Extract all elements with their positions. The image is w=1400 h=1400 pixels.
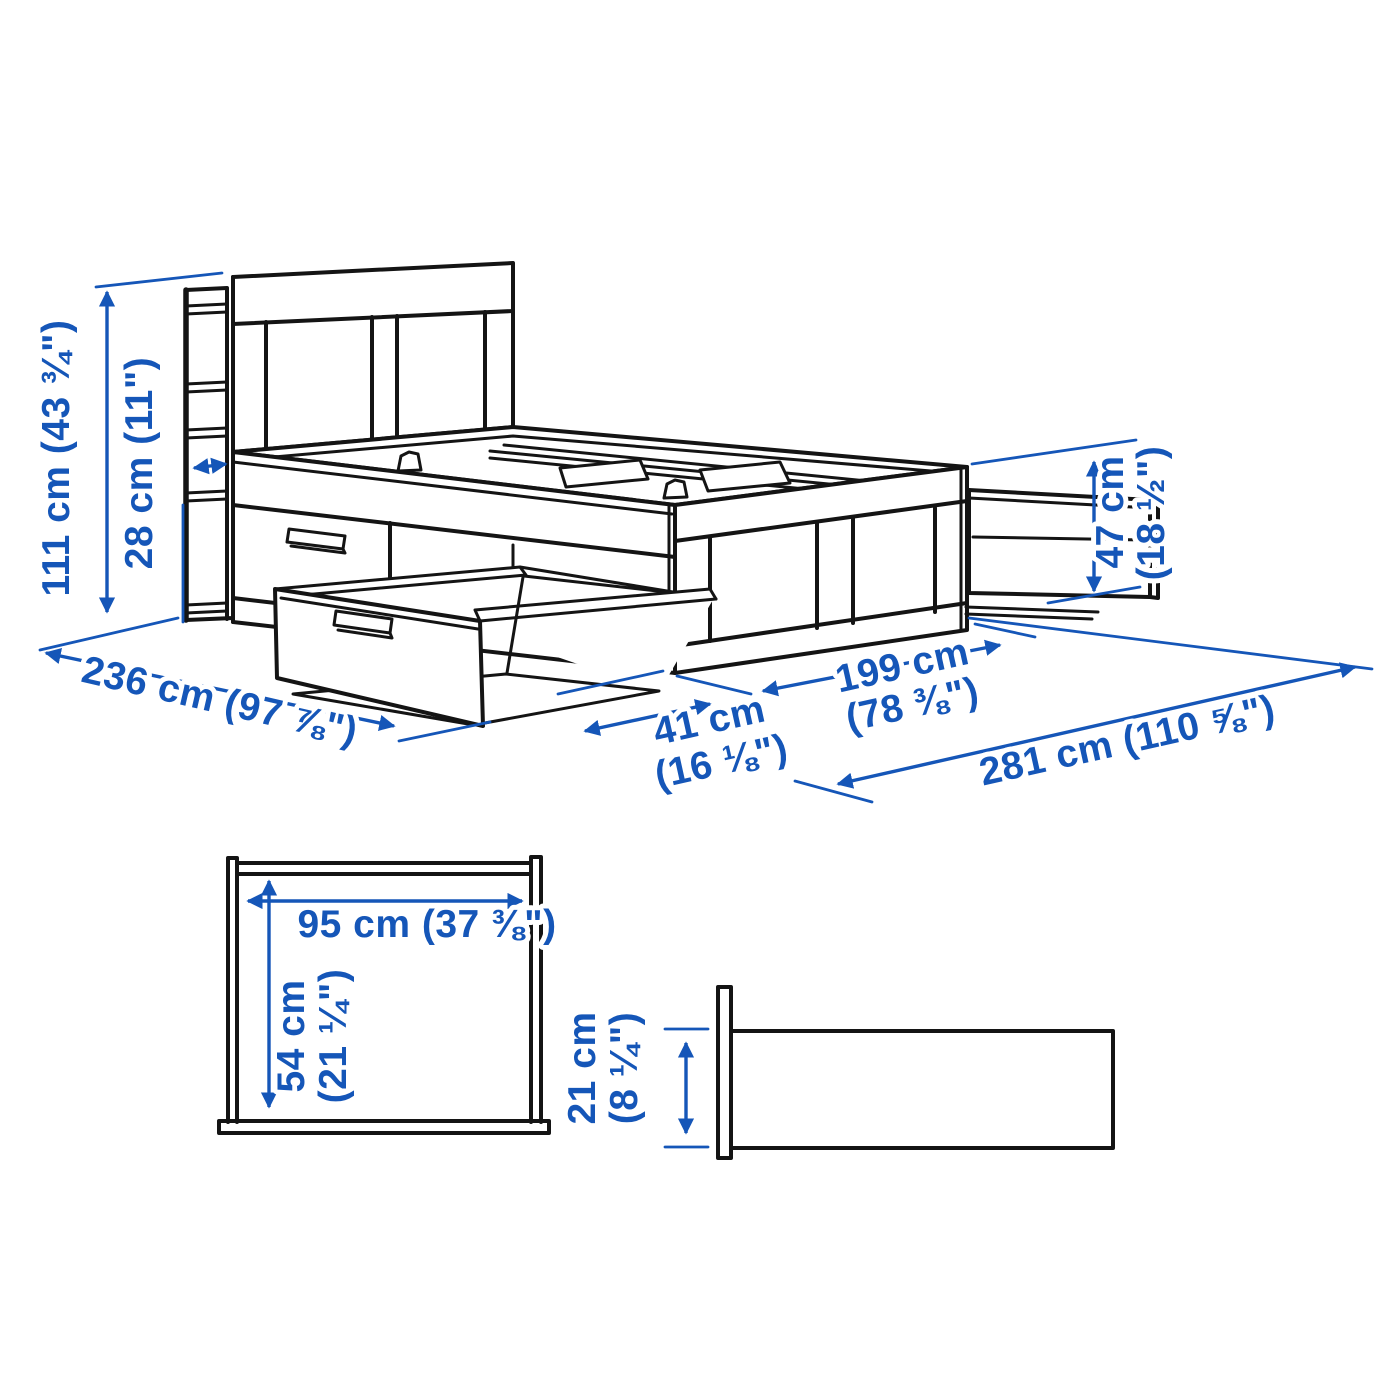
label-profile-height-2: (8 ¼") (603, 1012, 646, 1125)
label-inner-height-2: (21 ¼") (312, 969, 355, 1104)
arrow-shelf-depth (194, 464, 226, 468)
label-foot-height-1: 47 cm (1089, 455, 1132, 568)
slat-clip (664, 480, 687, 498)
left-rail (228, 858, 237, 1122)
bottom-panel (219, 1121, 549, 1133)
label-shelf-depth: 28 cm (11") (118, 357, 161, 570)
label-inner-height-1: 54 cm (270, 979, 313, 1092)
bed-perspective-view: 111 cm (43 ¾") 28 cm (11") 236 cm (97 ⅞"… (35, 263, 1372, 802)
top-panel (237, 863, 531, 874)
drawer-profile-view: 21 cm (8 ¼") (561, 987, 1113, 1158)
shelf-lines (186, 304, 227, 613)
label-profile-height-1: 21 cm (561, 1011, 604, 1124)
label-foot-height-2: (18 ½") (1130, 446, 1173, 581)
drawer-runners (966, 607, 1098, 619)
profile-rail (731, 1031, 1113, 1148)
label-headboard-height: 111 cm (43 ¾") (35, 319, 78, 596)
headboard-storage-unit (186, 287, 233, 621)
drawer-cross-section-view: 95 cm (37 ⅜") 54 cm (21 ¼") (219, 857, 557, 1133)
label-total-width-open: 281 cm (110 ⅝") (976, 687, 1280, 794)
right-rail (531, 857, 541, 1122)
label-inner-width: 95 cm (37 ⅜") (297, 903, 556, 946)
ikea-dimension-diagram: 111 cm (43 ¾") 28 cm (11") 236 cm (97 ⅞"… (0, 0, 1400, 1400)
slat-clip (398, 452, 421, 471)
